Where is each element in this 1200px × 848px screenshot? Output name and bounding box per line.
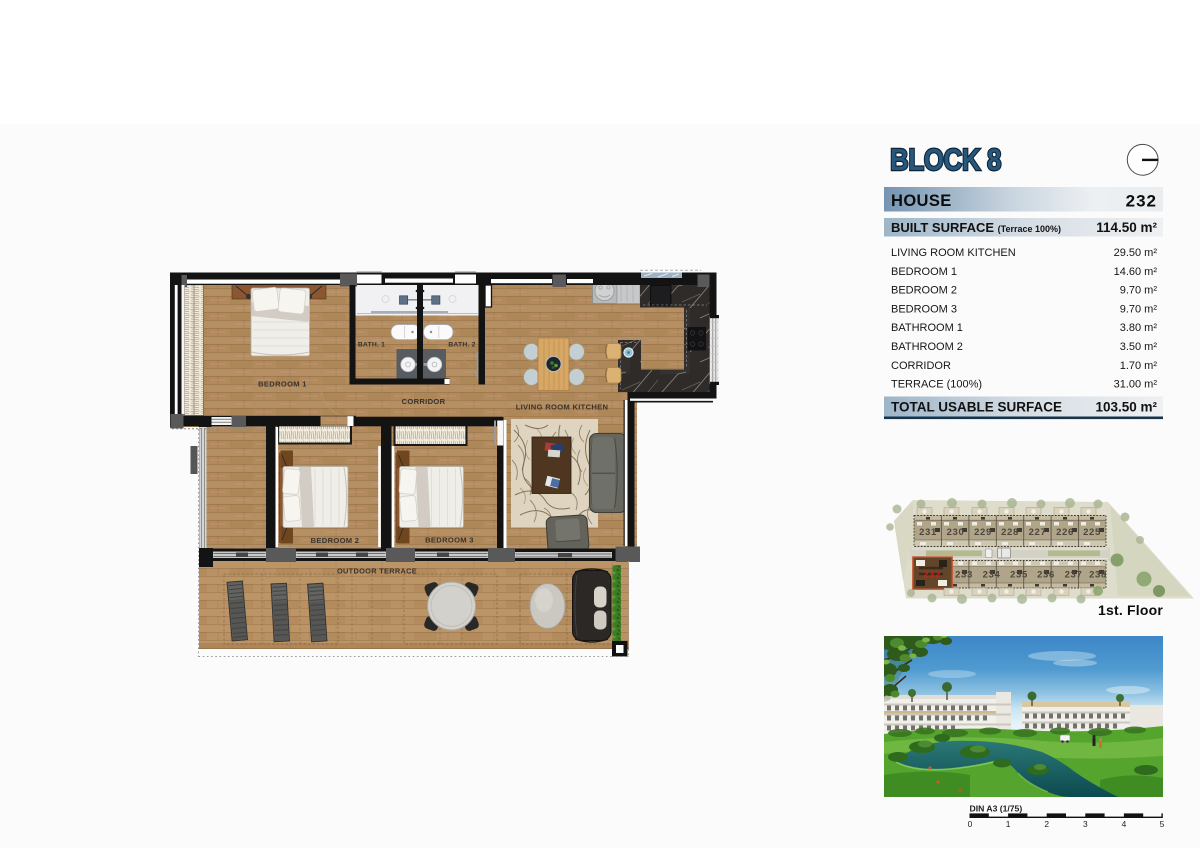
svg-text:3.80 m²: 3.80 m² (1120, 322, 1158, 334)
svg-text:BATH. 1: BATH. 1 (358, 342, 385, 349)
svg-text:0: 0 (968, 819, 973, 829)
svg-text:238: 238 (1089, 570, 1107, 581)
svg-text:4: 4 (1122, 819, 1127, 829)
svg-text:227: 227 (1029, 527, 1047, 538)
svg-text:CORRIDOR: CORRIDOR (402, 397, 446, 406)
svg-text:HOUSE: HOUSE (891, 192, 952, 210)
svg-text:LIVING ROOM KITCHEN: LIVING ROOM KITCHEN (891, 247, 1016, 259)
svg-text:3.50 m²: 3.50 m² (1120, 341, 1158, 353)
svg-text:229: 229 (974, 527, 992, 538)
svg-text:232: 232 (923, 570, 941, 581)
svg-text:230: 230 (947, 527, 965, 538)
svg-text:5: 5 (1160, 819, 1165, 829)
svg-text:14.60 m²: 14.60 m² (1114, 266, 1158, 278)
svg-text:3: 3 (1083, 819, 1088, 829)
svg-text:1: 1 (1006, 819, 1011, 829)
svg-text:9.70 m²: 9.70 m² (1120, 303, 1158, 315)
svg-text:1.70 m²: 1.70 m² (1120, 360, 1158, 372)
svg-text:2: 2 (1044, 819, 1049, 829)
svg-text:BEDROOM 2: BEDROOM 2 (311, 536, 360, 545)
svg-text:235: 235 (1010, 570, 1028, 581)
svg-text:BEDROOM 1: BEDROOM 1 (891, 266, 957, 278)
svg-text:BATHROOM 1: BATHROOM 1 (891, 322, 963, 334)
svg-text:234: 234 (983, 570, 1001, 581)
svg-text:226: 226 (1056, 527, 1074, 538)
svg-text:1st. Floor: 1st. Floor (1098, 602, 1163, 618)
svg-text:BLOCK 8: BLOCK 8 (890, 142, 1001, 177)
svg-text:29.50 m²: 29.50 m² (1114, 247, 1158, 259)
svg-text:9.70 m²: 9.70 m² (1120, 285, 1158, 297)
svg-text:31.00 m²: 31.00 m² (1114, 379, 1158, 391)
svg-text:BATHROOM 2: BATHROOM 2 (891, 341, 963, 353)
svg-text:TERRACE (100%): TERRACE (100%) (891, 379, 982, 391)
svg-text:114.50 m²: 114.50 m² (1096, 220, 1157, 235)
svg-text:DIN A3 (1/75): DIN A3 (1/75) (970, 804, 1023, 814)
svg-text:BEDROOM 3: BEDROOM 3 (425, 536, 474, 545)
svg-text:103.50 m²: 103.50 m² (1095, 400, 1157, 415)
svg-text:CORRIDOR: CORRIDOR (891, 360, 951, 372)
svg-text:LIVING ROOM KITCHEN: LIVING ROOM KITCHEN (516, 403, 609, 412)
svg-text:236: 236 (1037, 570, 1055, 581)
svg-text:232: 232 (1126, 192, 1157, 211)
svg-text:BATH. 2: BATH. 2 (448, 342, 475, 349)
svg-text:BEDROOM 3: BEDROOM 3 (891, 303, 957, 315)
svg-text:OUTDOOR TERRACE: OUTDOOR TERRACE (337, 567, 417, 576)
svg-text:BEDROOM 1: BEDROOM 1 (258, 380, 307, 389)
svg-text:228: 228 (1001, 527, 1019, 538)
svg-text:225: 225 (1083, 527, 1101, 538)
svg-text:231: 231 (919, 527, 937, 538)
svg-text:BEDROOM 2: BEDROOM 2 (891, 285, 957, 297)
svg-text:TOTAL USABLE SURFACE: TOTAL USABLE SURFACE (891, 400, 1062, 415)
svg-text:237: 237 (1065, 570, 1083, 581)
svg-text:233: 233 (955, 570, 973, 581)
